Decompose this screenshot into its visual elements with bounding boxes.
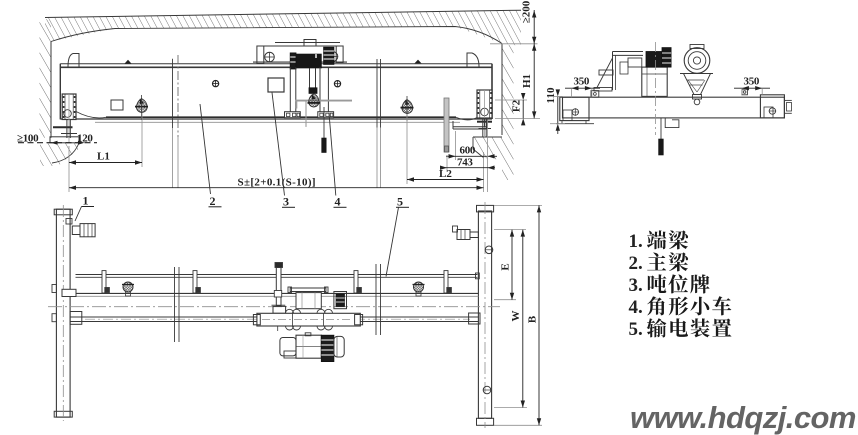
svg-text:≥100: ≥100 (17, 133, 39, 145)
svg-text:W: W (510, 311, 522, 322)
svg-text:L1: L1 (97, 151, 110, 163)
svg-text:5.: 5. (629, 319, 643, 340)
svg-text:743: 743 (457, 157, 473, 169)
svg-text:110: 110 (545, 87, 557, 103)
svg-text:F2: F2 (511, 99, 523, 112)
svg-text:2.: 2. (629, 253, 643, 274)
svg-text:≥200: ≥200 (521, 0, 533, 23)
svg-text:S±[2+0.1(S-10)]: S±[2+0.1(S-10)] (238, 177, 316, 189)
svg-text:2: 2 (210, 194, 216, 208)
svg-text:4: 4 (335, 195, 341, 209)
svg-text:350: 350 (574, 76, 590, 88)
svg-text:4.: 4. (629, 297, 643, 318)
svg-text:www.hdqzj.com: www.hdqzj.com (630, 400, 856, 435)
svg-text:350: 350 (744, 76, 760, 88)
svg-text:1: 1 (83, 194, 89, 208)
svg-text:1.: 1. (629, 231, 643, 252)
svg-text:B: B (527, 315, 539, 323)
svg-text:600: 600 (460, 145, 476, 157)
svg-text:L2: L2 (439, 168, 452, 180)
svg-text:3: 3 (283, 195, 289, 209)
svg-text:5: 5 (397, 195, 403, 209)
svg-text:E: E (500, 263, 512, 270)
svg-text:H1: H1 (521, 74, 533, 88)
svg-text:3.: 3. (629, 275, 643, 296)
